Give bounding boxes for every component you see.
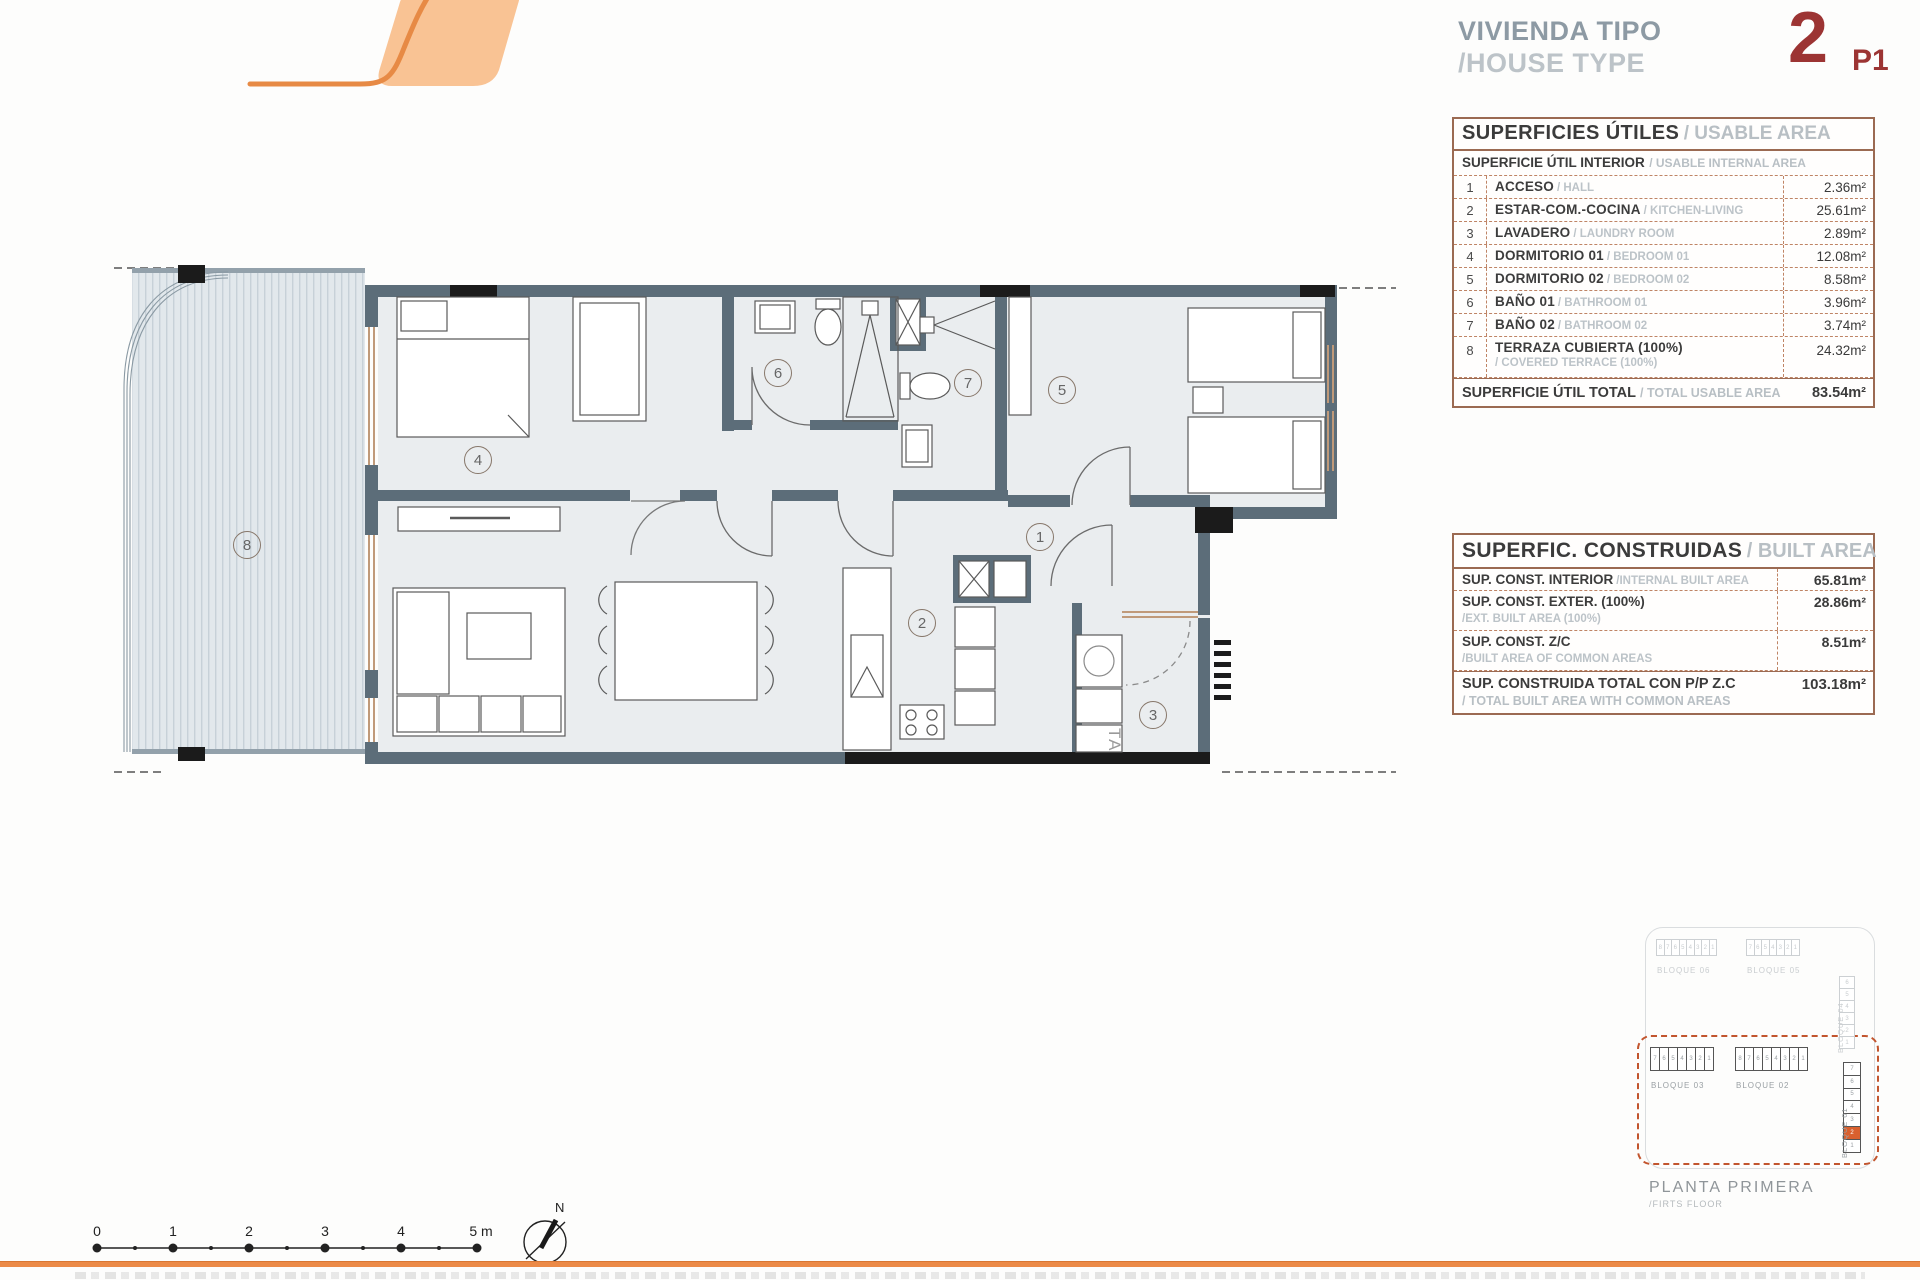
row-name: SUP. CONST. INTERIOR/INTERNAL BUILT AREA [1454,569,1777,590]
unit-cell: 7 [1843,1062,1861,1076]
usable-title-en: / USABLE AREA [1684,123,1831,144]
row-value: 2.89m² [1783,222,1873,244]
floor-label-en: /FIRTS FLOOR [1649,1199,1723,1209]
pillar [1300,285,1335,297]
built-title-es: SUPERFIC. CONSTRUIDAS [1462,539,1742,562]
built-table-row: SUP. CONST. INTERIOR/INTERNAL BUILT AREA… [1454,569,1873,591]
row-number: 6 [1454,291,1487,313]
north-label: N [555,1200,564,1215]
svg-text:8: 8 [243,537,251,554]
usable-total-en: / TOTAL USABLE AREA [1640,386,1781,400]
row-name: LAVADERO/ LAUNDRY ROOM [1487,224,1783,242]
built-table-row: SUP. CONST. Z/C/BUILT AREA OF COMMON ARE… [1454,631,1873,671]
usable-table-row: 6 BAÑO 01/ BATHROOM 01 3.96m² [1454,291,1873,314]
unit-cell: 5 [1843,1088,1861,1102]
hob [900,705,944,739]
row-name: SUP. CONST. EXTER. (100%)/EXT. BUILT ARE… [1454,591,1777,630]
pillar [450,285,497,297]
block-label: BLOQUE 05 [1747,966,1800,975]
house-type-floor: P1 [1852,44,1889,78]
usable-table-row: 7 BAÑO 02/ BATHROOM 02 3.74m² [1454,314,1873,337]
brand-logo [240,0,560,100]
built-rows: SUP. CONST. INTERIOR/INTERNAL BUILT AREA… [1454,569,1873,671]
logo-parallelogram [379,0,520,86]
north-arrow: N [515,1198,579,1270]
row-number: 4 [1454,245,1487,267]
usable-total-es: SUPERFICIE ÚTIL TOTAL [1462,385,1636,401]
row-name: BAÑO 02/ BATHROOM 02 [1487,316,1783,334]
svg-text:3: 3 [321,1223,329,1239]
row-number: 7 [1454,314,1487,336]
row-name: TERRAZA CUBIERTA (100%)/ COVERED TERRACE… [1487,339,1783,369]
svg-text:1: 1 [169,1223,177,1239]
usable-table-row: 3 LAVADERO/ LAUNDRY ROOM 2.89m² [1454,222,1873,245]
block-label: BLOQUE 02 [1736,1081,1789,1090]
svg-text:4: 4 [474,452,482,469]
row-value: 3.96m² [1783,291,1873,313]
row-value: 12.08m² [1783,245,1873,267]
block-strip: 87654321 [1657,939,1717,956]
usable-rows: 1 ACCESO/ HALL 2.36m²2 ESTAR-COM.-COCINA… [1454,176,1873,378]
svg-text:0: 0 [93,1223,101,1239]
pillar [178,265,205,283]
house-type-title-en: /HOUSE TYPE [1458,48,1645,79]
toilet [815,309,841,345]
block-label: BLOQUE 01 [1840,1107,1849,1158]
row-name: BAÑO 01/ BATHROOM 01 [1487,293,1783,311]
built-table-row: SUP. CONST. EXTER. (100%)/EXT. BUILT ARE… [1454,591,1873,631]
svg-text:1: 1 [1036,529,1044,546]
footer-accent-line [0,1261,1920,1267]
built-table-header: SUPERFIC. CONSTRUIDAS / BUILT AREA [1454,535,1873,569]
usable-area-table: SUPERFICIES ÚTILES / USABLE AREA SUPERFI… [1452,117,1875,408]
usable-table-subheader: SUPERFICIE ÚTIL INTERIOR / USABLE INTERN… [1454,151,1873,176]
unit-cell: 1 [1798,1047,1808,1071]
svg-text:3: 3 [1149,707,1157,724]
pillar [178,747,205,761]
usable-table-row: 5 DORMITORIO 02/ BEDROOM 02 8.58m² [1454,268,1873,291]
house-type-number: 2 [1788,2,1828,74]
block-label: BLOQUE 03 [1651,1081,1704,1090]
block-label: BLOQUE 04 [1836,1002,1845,1053]
block-label: BLOQUE 06 [1657,966,1710,975]
scale-bar: 0 1 2 3 4 5 m [85,1212,505,1267]
nightstand [1193,387,1223,413]
floor-plan: TA 8 4 6 7 5 1 2 3 [110,255,1400,800]
washer-label: TA [1105,728,1124,752]
svg-text:7: 7 [964,375,972,392]
svg-text:6: 6 [774,365,782,382]
logo-graphic [240,0,560,100]
row-name: DORMITORIO 01/ BEDROOM 01 [1487,247,1783,265]
built-total-row: SUP. CONSTRUIDA TOTAL CON P/P Z.C / TOTA… [1454,671,1873,713]
svg-text:5: 5 [1058,382,1066,399]
row-number: 1 [1454,176,1487,198]
usable-table-row: 2 ESTAR-COM.-COCINA/ KITCHEN-LIVING 25.6… [1454,199,1873,222]
usable-table-row: 1 ACCESO/ HALL 2.36m² [1454,176,1873,199]
row-value: 65.81m² [1777,569,1873,590]
usable-total-value: 83.54m² [1812,385,1866,401]
row-value: 24.32m² [1783,339,1873,377]
block-strip: 7654321 [1747,939,1800,956]
unit-cell: 1 [1704,1047,1714,1071]
built-title-en: / BUILT AREA [1747,540,1877,562]
site-block-map: 87654321BLOQUE 067654321BLOQUE 05654321B… [1643,925,1915,1225]
unit-cell: 1 [1791,939,1800,956]
row-number: 2 [1454,199,1487,221]
row-name: ESTAR-COM.-COCINA/ KITCHEN-LIVING [1487,201,1783,219]
svg-text:4: 4 [397,1223,405,1239]
row-number: 8 [1454,339,1487,377]
usable-table-row: 4 DORMITORIO 01/ BEDROOM 01 12.08m² [1454,245,1873,268]
block-strip: 7654321 [1651,1047,1714,1071]
row-value: 25.61m² [1783,199,1873,221]
usable-table-header: SUPERFICIES ÚTILES / USABLE AREA [1454,119,1873,151]
row-value: 28.86m² [1777,591,1873,630]
unit-cell: 1 [1709,939,1718,956]
usable-total-row: SUPERFICIE ÚTIL TOTAL / TOTAL USABLE ARE… [1454,378,1873,406]
stair-hatch [1214,640,1231,700]
footer-fineprint-cutoff [75,1272,1865,1279]
row-name: DORMITORIO 02/ BEDROOM 02 [1487,270,1783,288]
pillar [845,752,1210,764]
row-value: 3.74m² [1783,314,1873,336]
row-value: 8.58m² [1783,268,1873,290]
usable-table-row: 8 TERRAZA CUBIERTA (100%)/ COVERED TERRA… [1454,337,1873,378]
usable-sub-en: / USABLE INTERNAL AREA [1649,156,1806,170]
svg-text:2: 2 [245,1223,253,1239]
row-value: 2.36m² [1783,176,1873,198]
usable-title-es: SUPERFICIES ÚTILES [1462,122,1679,144]
built-total-en: / TOTAL BUILT AREA WITH COMMON AREAS [1462,694,1866,708]
block-strip: 87654321 [1736,1047,1808,1071]
row-number: 5 [1454,268,1487,290]
unit-cell: 6 [1843,1075,1861,1089]
pillar [980,285,1030,297]
row-value: 8.51m² [1777,631,1873,670]
pillar [1195,507,1233,533]
row-name: ACCESO/ HALL [1487,178,1783,196]
house-type-title-es: VIVIENDA TIPO [1458,16,1662,47]
usable-sub-es: SUPERFICIE ÚTIL INTERIOR [1462,155,1645,170]
plan-sheet: VIVIENDA TIPO /HOUSE TYPE 2 P1 SUPERFICI… [0,0,1920,1280]
svg-text:5 m: 5 m [469,1223,492,1239]
built-total-value: 103.18m² [1802,676,1866,693]
svg-text:2: 2 [918,615,926,632]
row-name: SUP. CONST. Z/C/BUILT AREA OF COMMON ARE… [1454,631,1777,670]
built-area-table: SUPERFIC. CONSTRUIDAS / BUILT AREA SUP. … [1452,533,1875,715]
coffee-table [467,613,531,659]
dining-table [615,582,757,700]
row-number: 3 [1454,222,1487,244]
washer [1076,635,1122,687]
toilet [910,373,950,399]
floor-label-es: PLANTA PRIMERA [1649,1179,1815,1197]
